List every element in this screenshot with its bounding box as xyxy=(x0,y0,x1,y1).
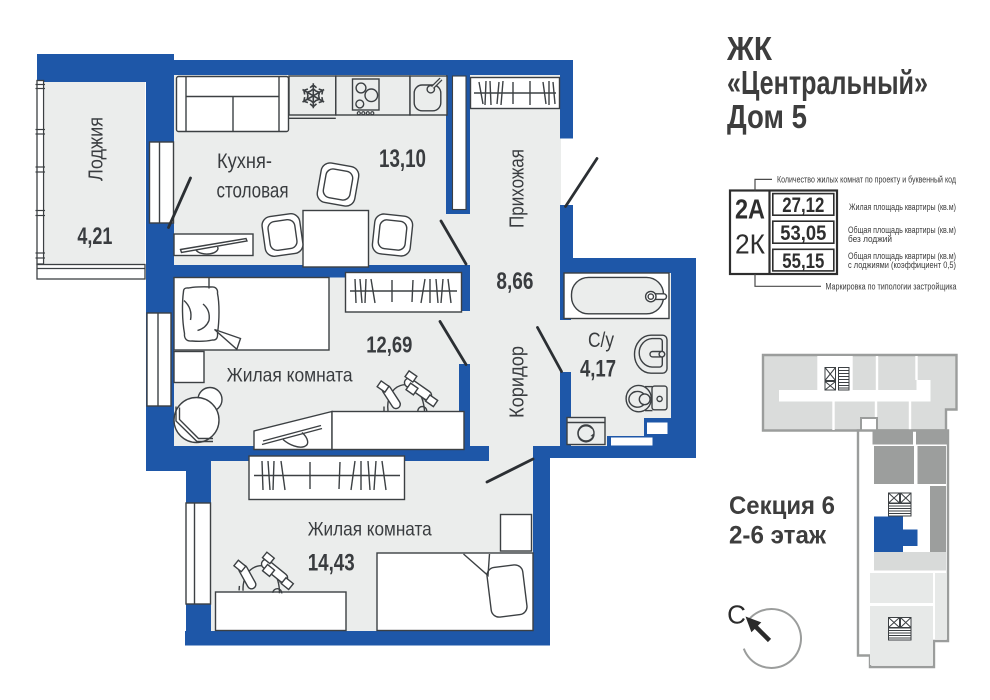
svg-text:Маркировка по типологии застро: Маркировка по типологии застройщика xyxy=(826,281,957,291)
svg-text:Секция 6: Секция 6 xyxy=(729,492,835,520)
svg-text:14,43: 14,43 xyxy=(308,550,355,577)
svg-text:без лоджий: без лоджий xyxy=(848,234,892,244)
svg-text:2А: 2А xyxy=(735,194,765,225)
svg-text:Жилая комната: Жилая комната xyxy=(227,364,353,386)
svg-text:Лоджия: Лоджия xyxy=(86,117,108,181)
svg-text:2К: 2К xyxy=(735,229,766,260)
svg-text:Жилая комната: Жилая комната xyxy=(308,518,432,540)
svg-text:27,12: 27,12 xyxy=(782,193,824,217)
svg-text:С: С xyxy=(727,600,746,630)
svg-text:Жилая площадь квартиры (кв.м): Жилая площадь квартиры (кв.м) xyxy=(849,202,956,212)
svg-text:Кухня-: Кухня- xyxy=(217,150,272,173)
svg-text:2-6 этаж: 2-6 этаж xyxy=(729,522,826,550)
svg-text:столовая: столовая xyxy=(217,180,289,203)
svg-text:ЖК: ЖК xyxy=(726,30,773,67)
svg-text:Количество жилых комнат по про: Количество жилых комнат по проекту и бук… xyxy=(777,175,957,185)
svg-text:«Центральный»: «Центральный» xyxy=(727,64,928,101)
svg-text:Дом 5: Дом 5 xyxy=(727,98,807,135)
svg-text:С/у: С/у xyxy=(588,328,614,352)
svg-text:Коридор: Коридор xyxy=(507,346,529,418)
svg-text:Прихожая: Прихожая xyxy=(507,149,529,228)
svg-text:4,17: 4,17 xyxy=(580,356,616,383)
svg-text:8,66: 8,66 xyxy=(496,268,533,295)
svg-text:55,15: 55,15 xyxy=(782,249,824,273)
svg-text:53,05: 53,05 xyxy=(780,221,826,245)
svg-text:12,69: 12,69 xyxy=(366,332,412,358)
svg-text:с лоджиями (коэффициент 0,5): с лоджиями (коэффициент 0,5) xyxy=(848,260,956,270)
svg-text:13,10: 13,10 xyxy=(379,145,426,173)
svg-text:4,21: 4,21 xyxy=(77,223,112,250)
